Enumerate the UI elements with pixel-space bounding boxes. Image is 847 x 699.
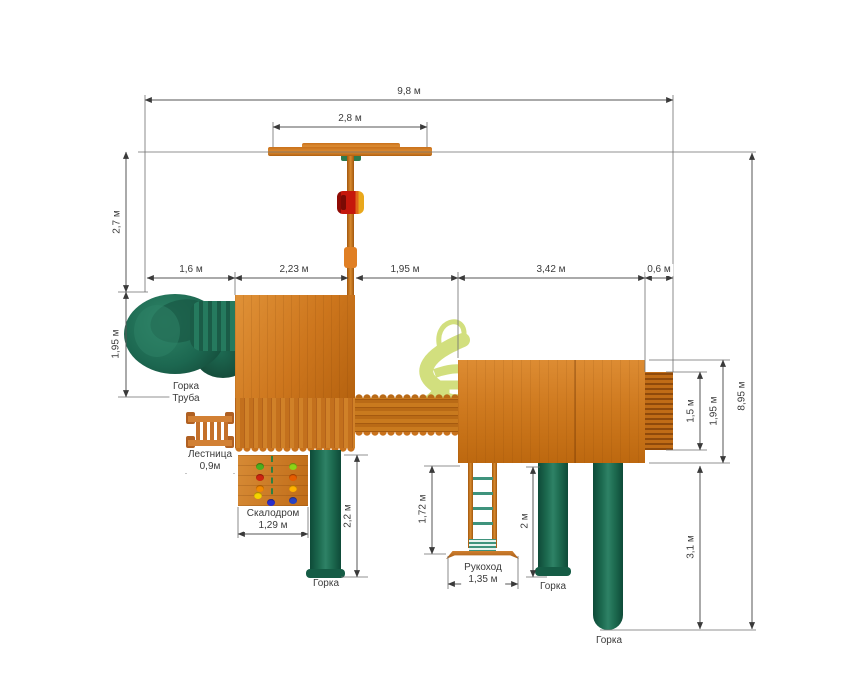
dim-slide1-len: 2,2 м [343, 502, 354, 530]
label-ladder-name: Лестница [188, 449, 232, 460]
dimension-layer [0, 0, 847, 699]
dim-seg-platform: 3,42 м [534, 264, 567, 276]
dimension-lines [126, 100, 752, 629]
dim-monkey-width: 1,35 м [468, 574, 497, 585]
dim-monkey-len: 1,72 м [418, 492, 429, 525]
dim-swing-beam: 2,8 м [336, 113, 364, 125]
label-tube-slide-line2: Труба [172, 393, 199, 404]
dim-tube-depth: 1,95 м [111, 327, 122, 360]
dim-seg-tower: 2,23 м [277, 264, 310, 276]
dim-exit-width: 1,5 м [686, 397, 697, 425]
label-ladder: Лестница 0,9м [185, 448, 235, 473]
dim-swing-offset: 2,7 м [112, 208, 123, 236]
label-slide-2: Горка [538, 581, 568, 593]
dim-total-width: 9,8 м [395, 86, 423, 98]
label-climb-wall: Скалодром 1,29 м [244, 507, 303, 532]
dim-seg-exit: 0,6 м [645, 264, 673, 276]
label-slide-1: Горка [311, 578, 341, 590]
dim-wall-width: 1,29 м [258, 520, 287, 531]
label-monkey-bars: Рукоход 1,35 м [461, 561, 505, 586]
extension-lines [118, 95, 756, 630]
dim-seg-gap: 1,95 м [388, 264, 421, 276]
label-tube-slide-line1: Горка [173, 381, 199, 392]
dim-slide3-len: 3,1 м [686, 533, 697, 561]
dim-total-depth: 8,95 м [737, 379, 748, 412]
dim-ladder-width: 0,9м [200, 461, 221, 472]
dim-slide2-len: 2 м [520, 511, 531, 530]
label-slide-3: Горка [594, 635, 624, 647]
playground-plan: 9,8 м 2,8 м 1,6 м 2,23 м 1,95 м 3,42 м 0… [0, 0, 847, 699]
label-tube-slide: Горка Труба [169, 380, 202, 405]
dim-platform-depth: 1,95 м [709, 394, 720, 427]
dim-seg-tube: 1,6 м [177, 264, 205, 276]
label-monkey-bars-name: Рукоход [464, 562, 502, 573]
label-climb-wall-name: Скалодром [247, 508, 300, 519]
